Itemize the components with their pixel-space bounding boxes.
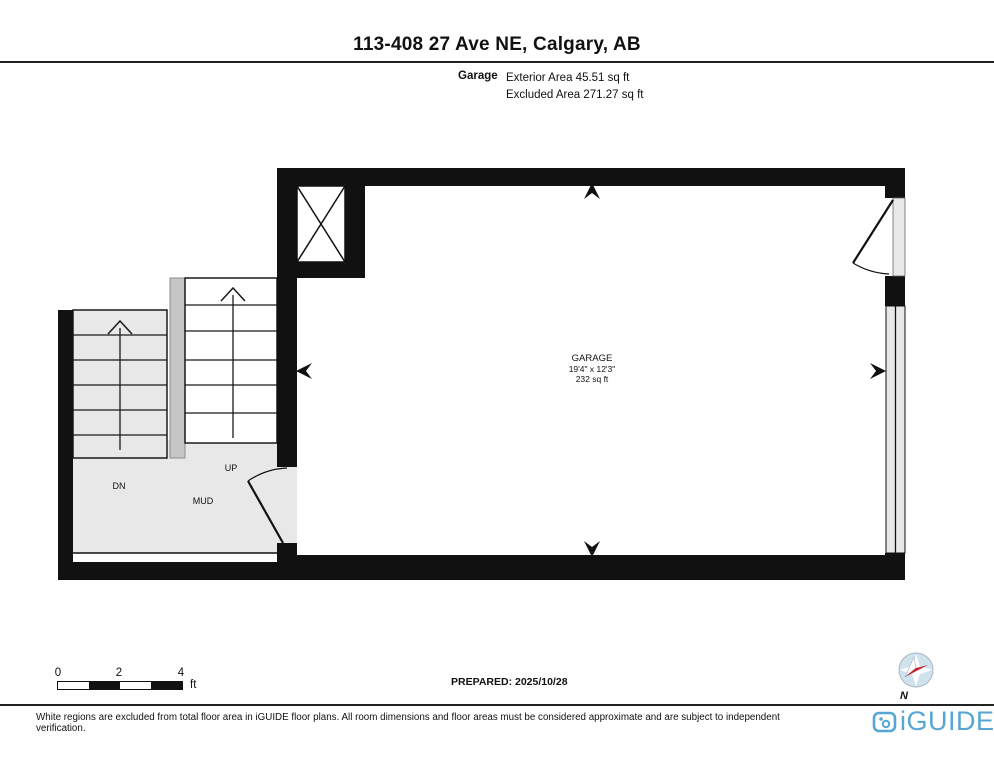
scale-bar-segments — [57, 681, 183, 690]
stair-divider-wall — [170, 278, 185, 458]
entry-door-recess — [893, 198, 905, 276]
scale-segment — [58, 682, 89, 689]
stairs-down — [73, 310, 167, 458]
label-dn: DN — [113, 481, 126, 491]
wall-chase-bottom — [297, 262, 365, 278]
wall-bottom-mud — [58, 562, 277, 580]
scale-tick-0: 0 — [55, 667, 61, 679]
entry-door-leaf — [853, 200, 893, 263]
arrow-right-icon — [870, 363, 886, 379]
room-dimensions: 19'4" x 12'3" — [569, 364, 616, 374]
wall-right-mid — [885, 276, 905, 306]
scale-segment — [120, 682, 151, 689]
scale-unit: ft — [190, 679, 196, 691]
logo-camera-lens — [883, 720, 889, 726]
mud-door-opening — [277, 467, 297, 543]
wall-bottom-garage — [277, 555, 905, 580]
scale-segment — [89, 682, 120, 689]
wall-right-top — [885, 168, 905, 198]
wall-garage-left-upper — [277, 168, 297, 467]
arrow-down-icon — [584, 541, 600, 557]
iguide-logo-icon — [872, 710, 897, 734]
floor-plan-drawing: GARAGE 19'4" x 12'3" 232 sq ft DN UP MUD — [0, 0, 994, 768]
arrow-left-icon — [296, 363, 312, 379]
wall-exterior-left — [58, 310, 73, 580]
prepared-date: PREPARED: 2025/10/28 — [451, 676, 568, 688]
wall-top — [277, 168, 905, 186]
window-right — [886, 306, 905, 553]
wall-chase-right — [345, 186, 365, 262]
wall-right-bottom — [885, 553, 905, 580]
scale-tick-4: 4 — [178, 667, 184, 679]
logo-camera-dot — [879, 717, 883, 721]
room-name: GARAGE — [572, 353, 613, 364]
room-area: 232 sq ft — [576, 374, 609, 384]
label-up: UP — [225, 463, 238, 473]
entry-door-swing-arc — [853, 263, 889, 274]
iguide-logo-text: iGUIDE — [900, 706, 994, 737]
scale-segment — [151, 682, 182, 689]
compass-north-label: N — [900, 690, 909, 702]
compass: N — [892, 648, 942, 702]
iguide-logo: iGUIDE — [872, 706, 994, 737]
chase-shaft — [297, 186, 345, 262]
floorplan-page: 113-408 27 Ave NE, Calgary, AB Garage Ex… — [0, 0, 994, 768]
entry-door — [853, 198, 905, 276]
scale-tick-2: 2 — [116, 667, 122, 679]
scale-bar: 0 2 4 ft — [57, 667, 217, 693]
stairs-up — [185, 278, 277, 443]
footer-disclaimer: White regions are excluded from total fl… — [36, 712, 826, 734]
footer-divider — [0, 704, 994, 706]
label-mud: MUD — [193, 496, 214, 506]
